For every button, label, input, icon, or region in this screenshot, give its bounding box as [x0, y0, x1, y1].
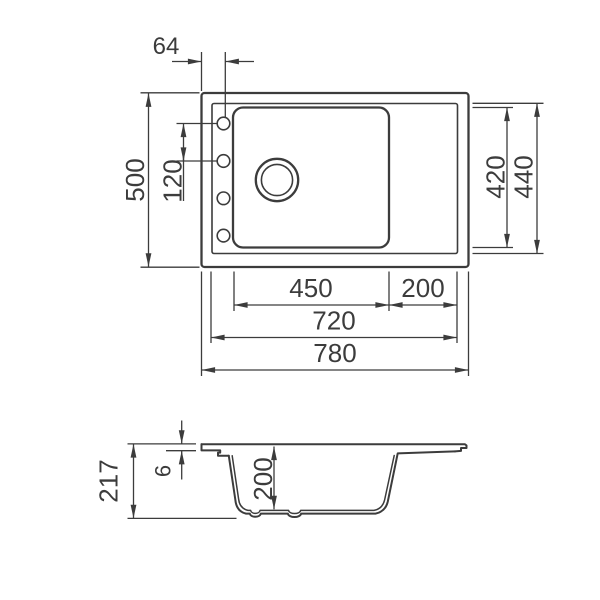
dim-section-bowl-depth-label: 200 — [248, 457, 278, 500]
dim-drainboard-width-label: 200 — [401, 273, 444, 303]
faucet-hole — [217, 229, 230, 242]
dim-faucet-hole-offset: 64 — [153, 33, 254, 117]
dim-faucet-hole-spacing-label: 120 — [158, 159, 188, 202]
top-view-dimensions: 64 500 120 420 440 — [120, 33, 544, 376]
faucet-hole — [217, 117, 230, 130]
dim-inner-depth-label: 440 — [509, 155, 539, 198]
dim-rim-thickness: 6 — [151, 421, 197, 480]
drain-inner — [261, 164, 292, 195]
dim-inner-width: 720 — [211, 306, 457, 338]
dim-bowl-width: 450 — [234, 273, 389, 305]
dim-section-bowl-depth: 200 — [248, 447, 278, 510]
sink-outer-outline — [202, 93, 469, 267]
dim-faucet-hole-spacing: 120 — [158, 124, 218, 203]
dim-overall-width-label: 780 — [313, 338, 356, 368]
dim-overall-depth-label: 500 — [120, 158, 150, 201]
section-view-dimensions: 217 6 200 — [94, 421, 279, 519]
section-view — [202, 444, 467, 517]
top-view — [202, 93, 469, 267]
dim-drainboard-width: 200 — [389, 273, 457, 305]
faucet-hole — [217, 192, 230, 205]
dim-rim-thickness-label: 6 — [151, 465, 176, 477]
dim-overall-height-label: 217 — [94, 459, 124, 502]
faucet-hole — [217, 155, 230, 168]
sink-inner-rim — [212, 104, 458, 254]
section-top-line — [202, 444, 467, 451]
sink-technical-drawing: 64 500 120 420 440 — [0, 0, 600, 600]
dim-bowl-depth-label: 420 — [481, 155, 511, 198]
dim-overall-height: 217 — [94, 444, 237, 519]
section-left-rim — [202, 444, 229, 456]
dim-faucet-hole-offset-label: 64 — [153, 33, 180, 60]
dim-bowl-width-label: 450 — [289, 273, 332, 303]
drawing-canvas: 64 500 120 420 440 — [0, 0, 600, 600]
dim-bowl-depth: 420 — [473, 108, 514, 248]
dim-overall-width: 780 — [202, 338, 469, 370]
dim-inner-width-label: 720 — [312, 306, 355, 336]
